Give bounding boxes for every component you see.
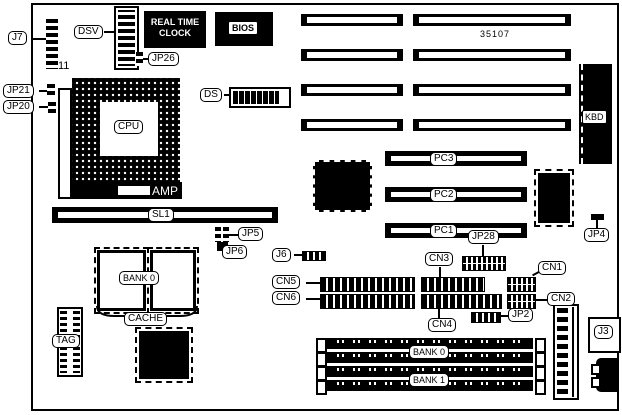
pc2-label: PC2 (430, 188, 457, 202)
jp21-jumper (47, 84, 55, 98)
j7-pin-count: 11 (58, 60, 69, 72)
power-connector (553, 304, 579, 400)
simm-clip (316, 380, 327, 395)
isa-slot (301, 119, 403, 131)
cn6-pointer (306, 298, 320, 300)
cn1-header (507, 277, 536, 292)
j7-label: J7 (8, 31, 27, 45)
cache-label: CACHE (124, 312, 167, 326)
jp2-label: JP2 (508, 308, 533, 322)
board-part-number: 35107 (480, 29, 510, 39)
ds-dip-switch (229, 87, 291, 108)
din-connector-tab (591, 364, 601, 375)
cn6-header (320, 294, 415, 309)
jp5-jumper (215, 227, 221, 242)
isa-slot (413, 14, 571, 26)
pc3-label: PC3 (430, 152, 457, 166)
jp20-jumper (48, 102, 56, 116)
ds-switch-segments (233, 91, 279, 104)
rtc-text-line2: CLOCK (144, 28, 206, 39)
cpu-socket-lever (58, 88, 72, 199)
simm-clip (316, 366, 327, 381)
jp20-pointer (39, 106, 48, 108)
rtc-text-line1: REAL TIME (144, 17, 206, 28)
jp26-label: JP26 (148, 52, 179, 66)
jp2-jumper (471, 312, 501, 323)
bank0-cache-label: BANK 0 (119, 271, 159, 285)
j3-label: J3 (594, 325, 613, 339)
j6-pointer (294, 254, 302, 256)
jp28-header (462, 256, 506, 271)
cn4-label: CN4 (428, 318, 456, 332)
j7-pointer (33, 38, 46, 40)
tag-label: TAG (52, 334, 80, 348)
jp20-label: JP20 (3, 100, 34, 114)
simm-clip (535, 338, 546, 353)
jp5-pointer (229, 234, 238, 236)
bios-label: BIOS (228, 21, 258, 35)
jp28-pointer (482, 245, 484, 256)
bank1-simm-label: BANK 1 (409, 373, 449, 387)
bank0-simm-label: BANK 0 (409, 345, 449, 359)
isa-slot (301, 49, 403, 61)
j6-connector (302, 251, 326, 261)
jp28-label: JP28 (468, 230, 499, 244)
cn3-header (421, 277, 485, 292)
cn6-label: CN6 (272, 291, 300, 305)
simm-clip (316, 338, 327, 353)
simm-clip (535, 366, 546, 381)
cn3-pointer (439, 267, 441, 277)
jp4-pointer (596, 220, 598, 228)
kbd-label: KBD (582, 110, 607, 124)
j6-label: J6 (272, 248, 291, 262)
pc1-label: PC1 (430, 224, 457, 238)
cn2-pointer (534, 299, 547, 301)
jp4-label: JP4 (584, 228, 609, 242)
chipset-bga (313, 160, 372, 212)
cache-controller-qfp (139, 331, 189, 379)
cn4-header (421, 294, 502, 309)
io-controller-qfp (538, 173, 570, 223)
ds-pointer (224, 94, 230, 96)
simm-clip (535, 352, 546, 367)
cn2-header (507, 294, 536, 309)
isa-slot (301, 84, 403, 96)
jp21-label: JP21 (3, 84, 34, 98)
cn5-label: CN5 (272, 275, 300, 289)
cpu-label: CPU (114, 120, 143, 134)
real-time-clock-chip: REAL TIME CLOCK (144, 11, 206, 48)
motherboard-diagram: J7 11 DSV REAL TIME CLOCK BIOS JP26 JP21… (0, 0, 622, 415)
cn5-header (320, 277, 415, 292)
cn2-label: CN2 (547, 292, 575, 306)
amp-window (118, 186, 150, 195)
jp2-pointer (499, 315, 508, 317)
j7-connector (46, 19, 58, 69)
dsv-pointer (104, 31, 115, 33)
jp5-label: JP5 (238, 227, 263, 241)
din-connector-tab (591, 377, 601, 388)
isa-slot (413, 49, 571, 61)
dsv-label: DSV (74, 25, 103, 39)
cn1-label: CN1 (538, 261, 566, 275)
simm-clip (535, 380, 546, 395)
cn3-label: CN3 (425, 252, 453, 266)
isa-slot (413, 84, 571, 96)
jp26-jumper (136, 52, 143, 66)
sl1-label: SL1 (148, 208, 174, 222)
amp-regulator: AMP (72, 182, 182, 199)
isa-slot (413, 119, 571, 131)
isa-slot (301, 14, 403, 26)
cn5-pointer (306, 282, 320, 284)
amp-text: AMP (152, 184, 178, 198)
simm-clip (316, 352, 327, 367)
jp6-label: JP6 (222, 245, 247, 259)
ds-label: DS (200, 88, 222, 102)
cn4-pointer (438, 307, 440, 318)
jp21-pointer (39, 90, 47, 92)
